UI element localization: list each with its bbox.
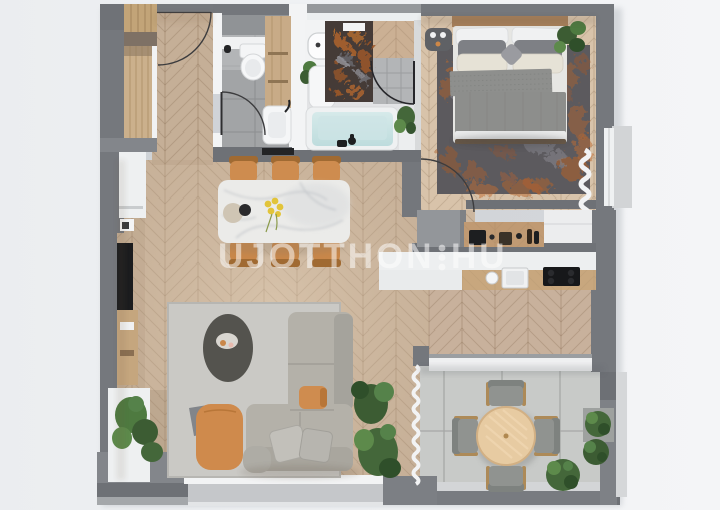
svg-text:UJOTTHON: UJOTTHON xyxy=(218,237,435,276)
svg-text:HU: HU xyxy=(451,237,508,276)
